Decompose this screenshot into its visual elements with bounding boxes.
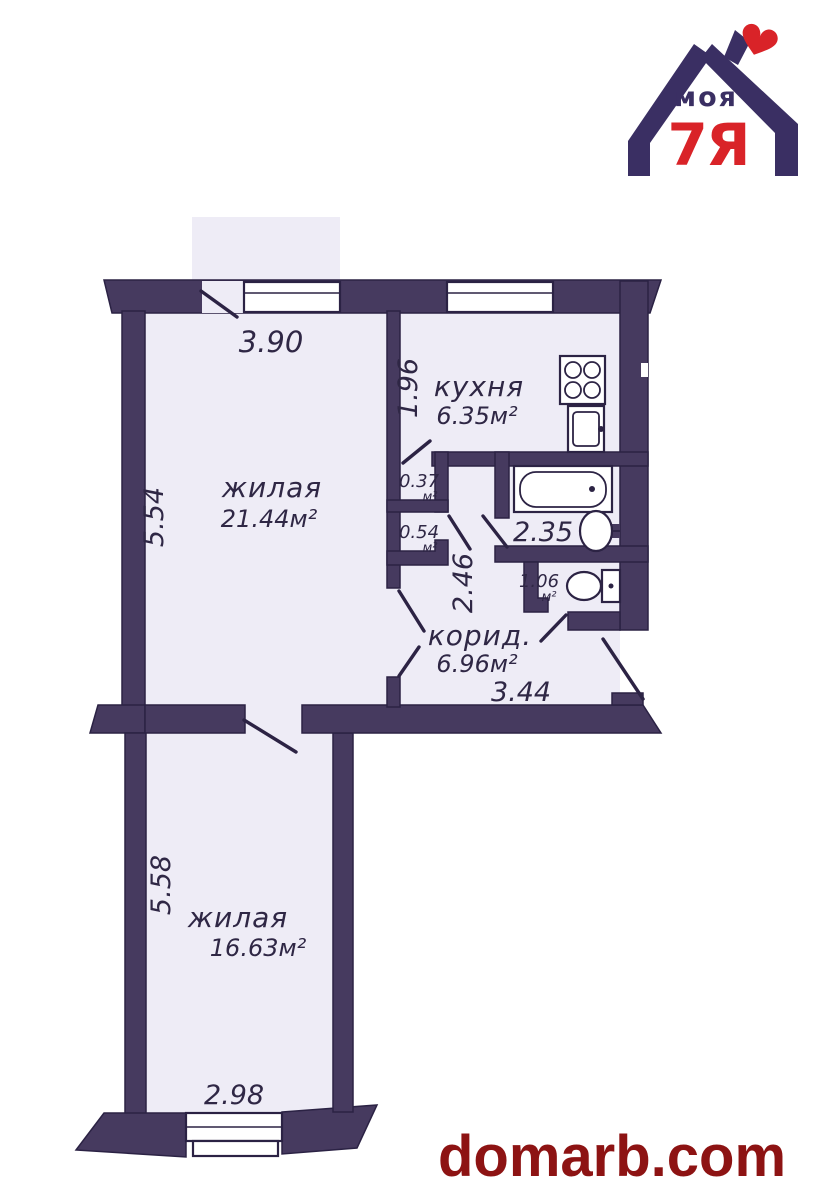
window-living-room-1 [244,282,340,312]
living1-name: жилая [221,471,322,504]
toilet-area-unit: м² [541,590,556,605]
dim-corridor-width: 3.44 [491,677,551,708]
room-living-1-label: жилая 21.44м² [221,471,322,533]
dim-living1-height: 5.54 [139,487,170,547]
section-divider-wall-left [145,705,245,733]
stove-icon [560,356,605,404]
living2-name: жилая [187,901,288,934]
kitchen-name: кухня [434,370,524,403]
corridor-area: 6.96м² [436,650,518,678]
living2-area: 16.63м² [210,934,307,962]
kitchen-bath-wall [432,452,648,466]
bathroom-bottom-wall [495,546,648,562]
dim-bathroom-width: 2.35 [513,517,573,548]
living-room-2-door-gap [245,706,302,733]
window-living-room-2 [186,1113,282,1156]
closet1-bottom-wall [387,500,448,512]
toilet-area-value: 1.06 [519,571,559,592]
dim-living2-width: 2.98 [204,1080,264,1111]
right-wall-notch [641,363,648,377]
logo-word-bottom: 7Я [667,111,748,179]
kitchen-sink-icon [568,406,604,452]
window-kitchen [447,282,553,312]
dim-hall-height: 2.46 [448,553,479,613]
kitchen-area: 6.35м² [436,402,518,430]
bathtub-icon [514,466,612,512]
bathroom-left-wall [495,452,509,518]
closet2-area-unit: м² [422,541,437,556]
logo-word-top: моя [674,82,738,113]
dim-kitchen-height: 1.96 [393,358,424,418]
dim-living2-height: 5.58 [146,855,177,915]
living1-corridor-wall-stub [387,677,400,707]
living1-corridor-wall [387,311,400,588]
corridor-name: корид. [428,619,532,652]
closet1-area-value: 0.37 [399,471,440,492]
top-wall [104,280,661,313]
dim-living1-width: 3.90 [239,325,304,359]
closet1-area-unit: м² [422,490,437,505]
right-wall-lower [333,733,353,1112]
room-corridor-label: корид. 6.96м² [428,619,532,678]
left-wall-step [90,705,145,733]
watermark: domarb.com [438,1124,786,1189]
floor-plan-image: жилая 21.44м² кухня 6.35м² 0.37 м² 0.54 … [0,0,820,1200]
closet2-area-value: 0.54 [399,522,439,543]
toilet-icon [567,570,620,602]
toilet-bottom-wall [568,612,620,630]
left-wall-lower [125,733,146,1115]
room-kitchen-label: кухня 6.35м² [434,370,524,430]
section-divider-wall-right [302,705,661,733]
living1-area: 21.44м² [221,505,318,533]
